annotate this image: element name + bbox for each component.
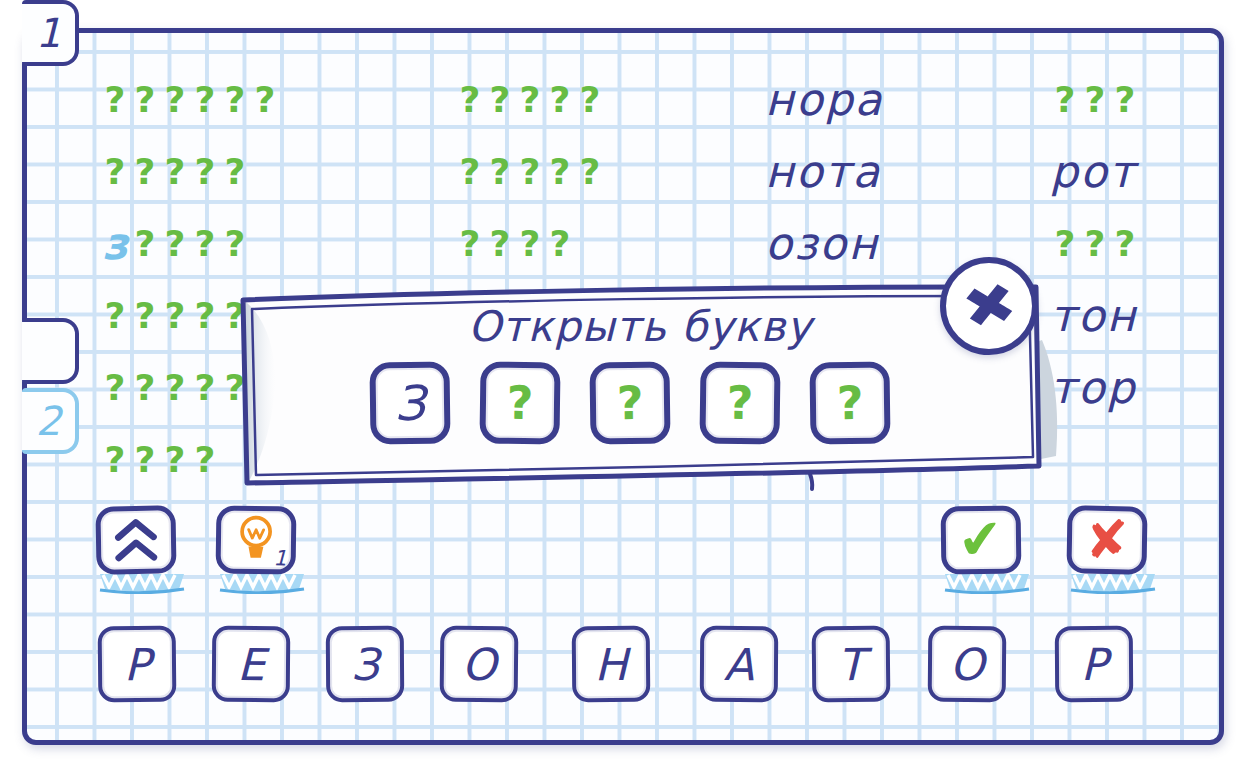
checkmark-icon: ✔ xyxy=(956,511,1006,569)
letter-tile[interactable]: О xyxy=(928,626,1007,703)
question-mark: ? xyxy=(485,154,515,190)
question-mark: ? xyxy=(130,226,160,262)
word-text: нота xyxy=(765,150,881,194)
question-mark: ? xyxy=(1050,82,1080,118)
question-mark: ? xyxy=(190,82,220,118)
clear-word-button[interactable]: ✘ xyxy=(1067,506,1159,594)
question-mark: ? xyxy=(130,154,160,190)
button-shadow xyxy=(1067,572,1159,594)
question-mark: ? xyxy=(1110,226,1140,262)
question-mark: ? xyxy=(160,442,190,478)
button-shadow xyxy=(941,572,1033,594)
page-tab-1-label: 1 xyxy=(36,10,61,56)
tile-question-mark: ? xyxy=(616,380,643,426)
tile-question-mark: ? xyxy=(726,380,753,426)
question-mark: ? xyxy=(160,226,190,262)
hint-button[interactable]: 1 xyxy=(216,506,308,594)
question-mark: ? xyxy=(515,82,545,118)
letter-tile[interactable]: З xyxy=(326,626,405,703)
question-mark: ? xyxy=(575,154,605,190)
collapse-keyboard-button[interactable] xyxy=(96,506,188,594)
page-tab-2[interactable]: 2 xyxy=(22,388,79,454)
word-column: ?????????????? xyxy=(455,64,605,280)
question-mark: ? xyxy=(485,82,515,118)
question-mark: ? xyxy=(545,82,575,118)
solved-word: нора xyxy=(765,64,884,136)
dialog-tile-hidden-letter[interactable]: ? xyxy=(699,361,780,444)
question-mark: ? xyxy=(160,82,190,118)
question-mark: ? xyxy=(160,298,190,334)
word-column: норанотаозон xyxy=(765,64,884,280)
red-cross-icon: ✘ xyxy=(1082,513,1132,567)
question-mark: ? xyxy=(1080,82,1110,118)
question-mark: ? xyxy=(100,154,130,190)
tile-question-mark: ? xyxy=(506,380,533,426)
game-screen: ???????????з????????????????????????????… xyxy=(0,0,1246,770)
question-mark: ? xyxy=(130,82,160,118)
tile-letter: З xyxy=(394,379,425,427)
tile-question-mark: ? xyxy=(836,380,863,426)
question-mark: ? xyxy=(455,82,485,118)
question-mark: ? xyxy=(160,370,190,406)
masked-word: ????? xyxy=(455,64,605,136)
letter-tile[interactable]: Н xyxy=(572,626,651,703)
page-tab-1[interactable]: 1 xyxy=(22,0,79,66)
question-mark: ? xyxy=(100,442,130,478)
masked-word: ??? xyxy=(1050,64,1140,136)
page-tab-2-label: 2 xyxy=(36,398,61,444)
question-mark: ? xyxy=(130,442,160,478)
question-mark: ? xyxy=(100,82,130,118)
dialog-tile-hidden-letter[interactable]: ? xyxy=(479,361,560,444)
question-mark: ? xyxy=(130,370,160,406)
dialog-tile-hidden-letter[interactable]: ? xyxy=(589,361,670,444)
question-mark: ? xyxy=(220,82,250,118)
solved-word: нота xyxy=(765,136,884,208)
question-mark: ? xyxy=(100,370,130,406)
dialog-title: Открыть букву xyxy=(250,300,1030,354)
button-shadow xyxy=(216,572,308,594)
masked-word: ????? xyxy=(100,136,280,208)
letter-tile[interactable]: Т xyxy=(812,626,891,703)
confirm-word-button[interactable]: ✔ xyxy=(941,506,1033,594)
word-text: нора xyxy=(765,78,884,122)
question-mark: ? xyxy=(130,298,160,334)
letter-tile[interactable]: Е xyxy=(212,626,291,703)
solved-word: рот xyxy=(1050,136,1140,208)
question-mark: ? xyxy=(160,154,190,190)
masked-word: ?????? xyxy=(100,64,280,136)
letter-tile[interactable]: Р xyxy=(98,626,177,703)
question-mark: ? xyxy=(190,154,220,190)
masked-word: ????? xyxy=(455,136,605,208)
dialog-tile-revealed-letter[interactable]: З xyxy=(369,361,450,444)
button-shadow xyxy=(96,572,188,594)
dialog-close-button[interactable]: ✖ xyxy=(940,257,1038,355)
double-chevron-up-icon xyxy=(107,513,166,566)
letter-tile[interactable]: О xyxy=(440,626,519,703)
question-mark: ? xyxy=(455,154,485,190)
letter-tile[interactable]: А xyxy=(700,626,779,703)
question-mark: ? xyxy=(545,154,575,190)
close-icon: ✖ xyxy=(958,274,1021,339)
pen-tick xyxy=(810,474,812,489)
question-mark: ? xyxy=(1110,82,1140,118)
letter-tile[interactable]: Р xyxy=(1055,626,1134,703)
question-mark: ? xyxy=(220,154,250,190)
dialog-tile-hidden-letter[interactable]: ? xyxy=(809,361,890,444)
hint-count-badge: 1 xyxy=(273,548,287,569)
revealed-letter: з xyxy=(100,222,130,266)
question-mark: ? xyxy=(575,82,605,118)
page-tab-1-overlay[interactable] xyxy=(22,318,79,384)
question-mark: ? xyxy=(100,298,130,334)
question-mark: ? xyxy=(515,154,545,190)
question-mark: ? xyxy=(250,82,280,118)
word-text: рот xyxy=(1050,150,1136,194)
